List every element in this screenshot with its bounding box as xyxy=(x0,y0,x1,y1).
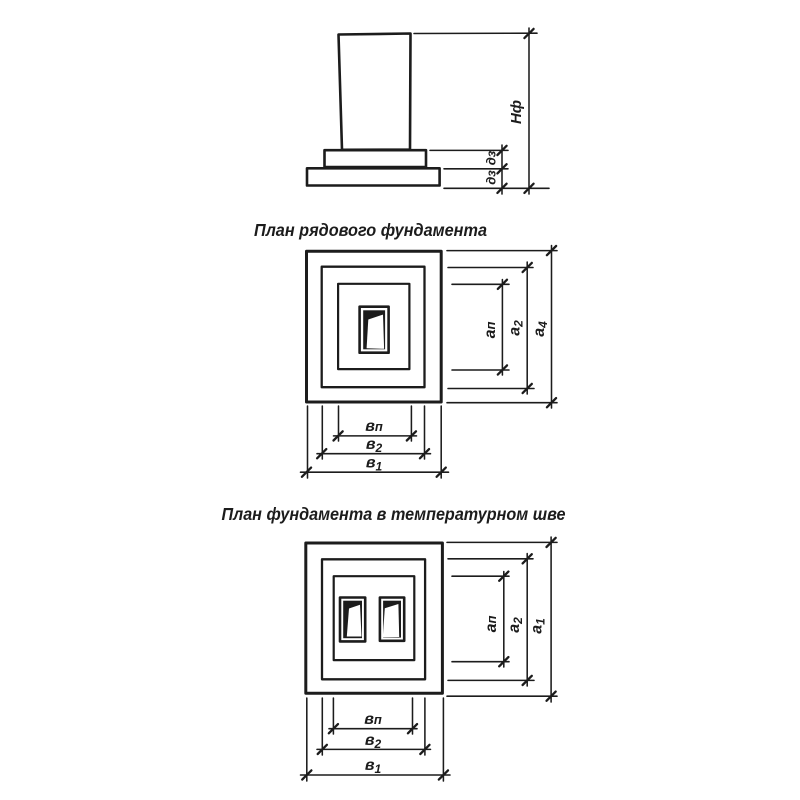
svg-text:ап: ап xyxy=(483,616,500,633)
svg-text:вп: вп xyxy=(365,418,383,435)
svg-text:ап: ап xyxy=(482,322,499,339)
svg-text:дз: дз xyxy=(484,170,499,185)
svg-text:План фундамента в температурно: План фундамента в температурном шве xyxy=(222,504,566,524)
svg-text:вп: вп xyxy=(364,711,382,728)
svg-text:дз: дз xyxy=(484,150,499,165)
svg-text:Нф: Нф xyxy=(508,100,525,124)
svg-text:План рядового фундамента: План рядового фундамента xyxy=(254,220,487,240)
